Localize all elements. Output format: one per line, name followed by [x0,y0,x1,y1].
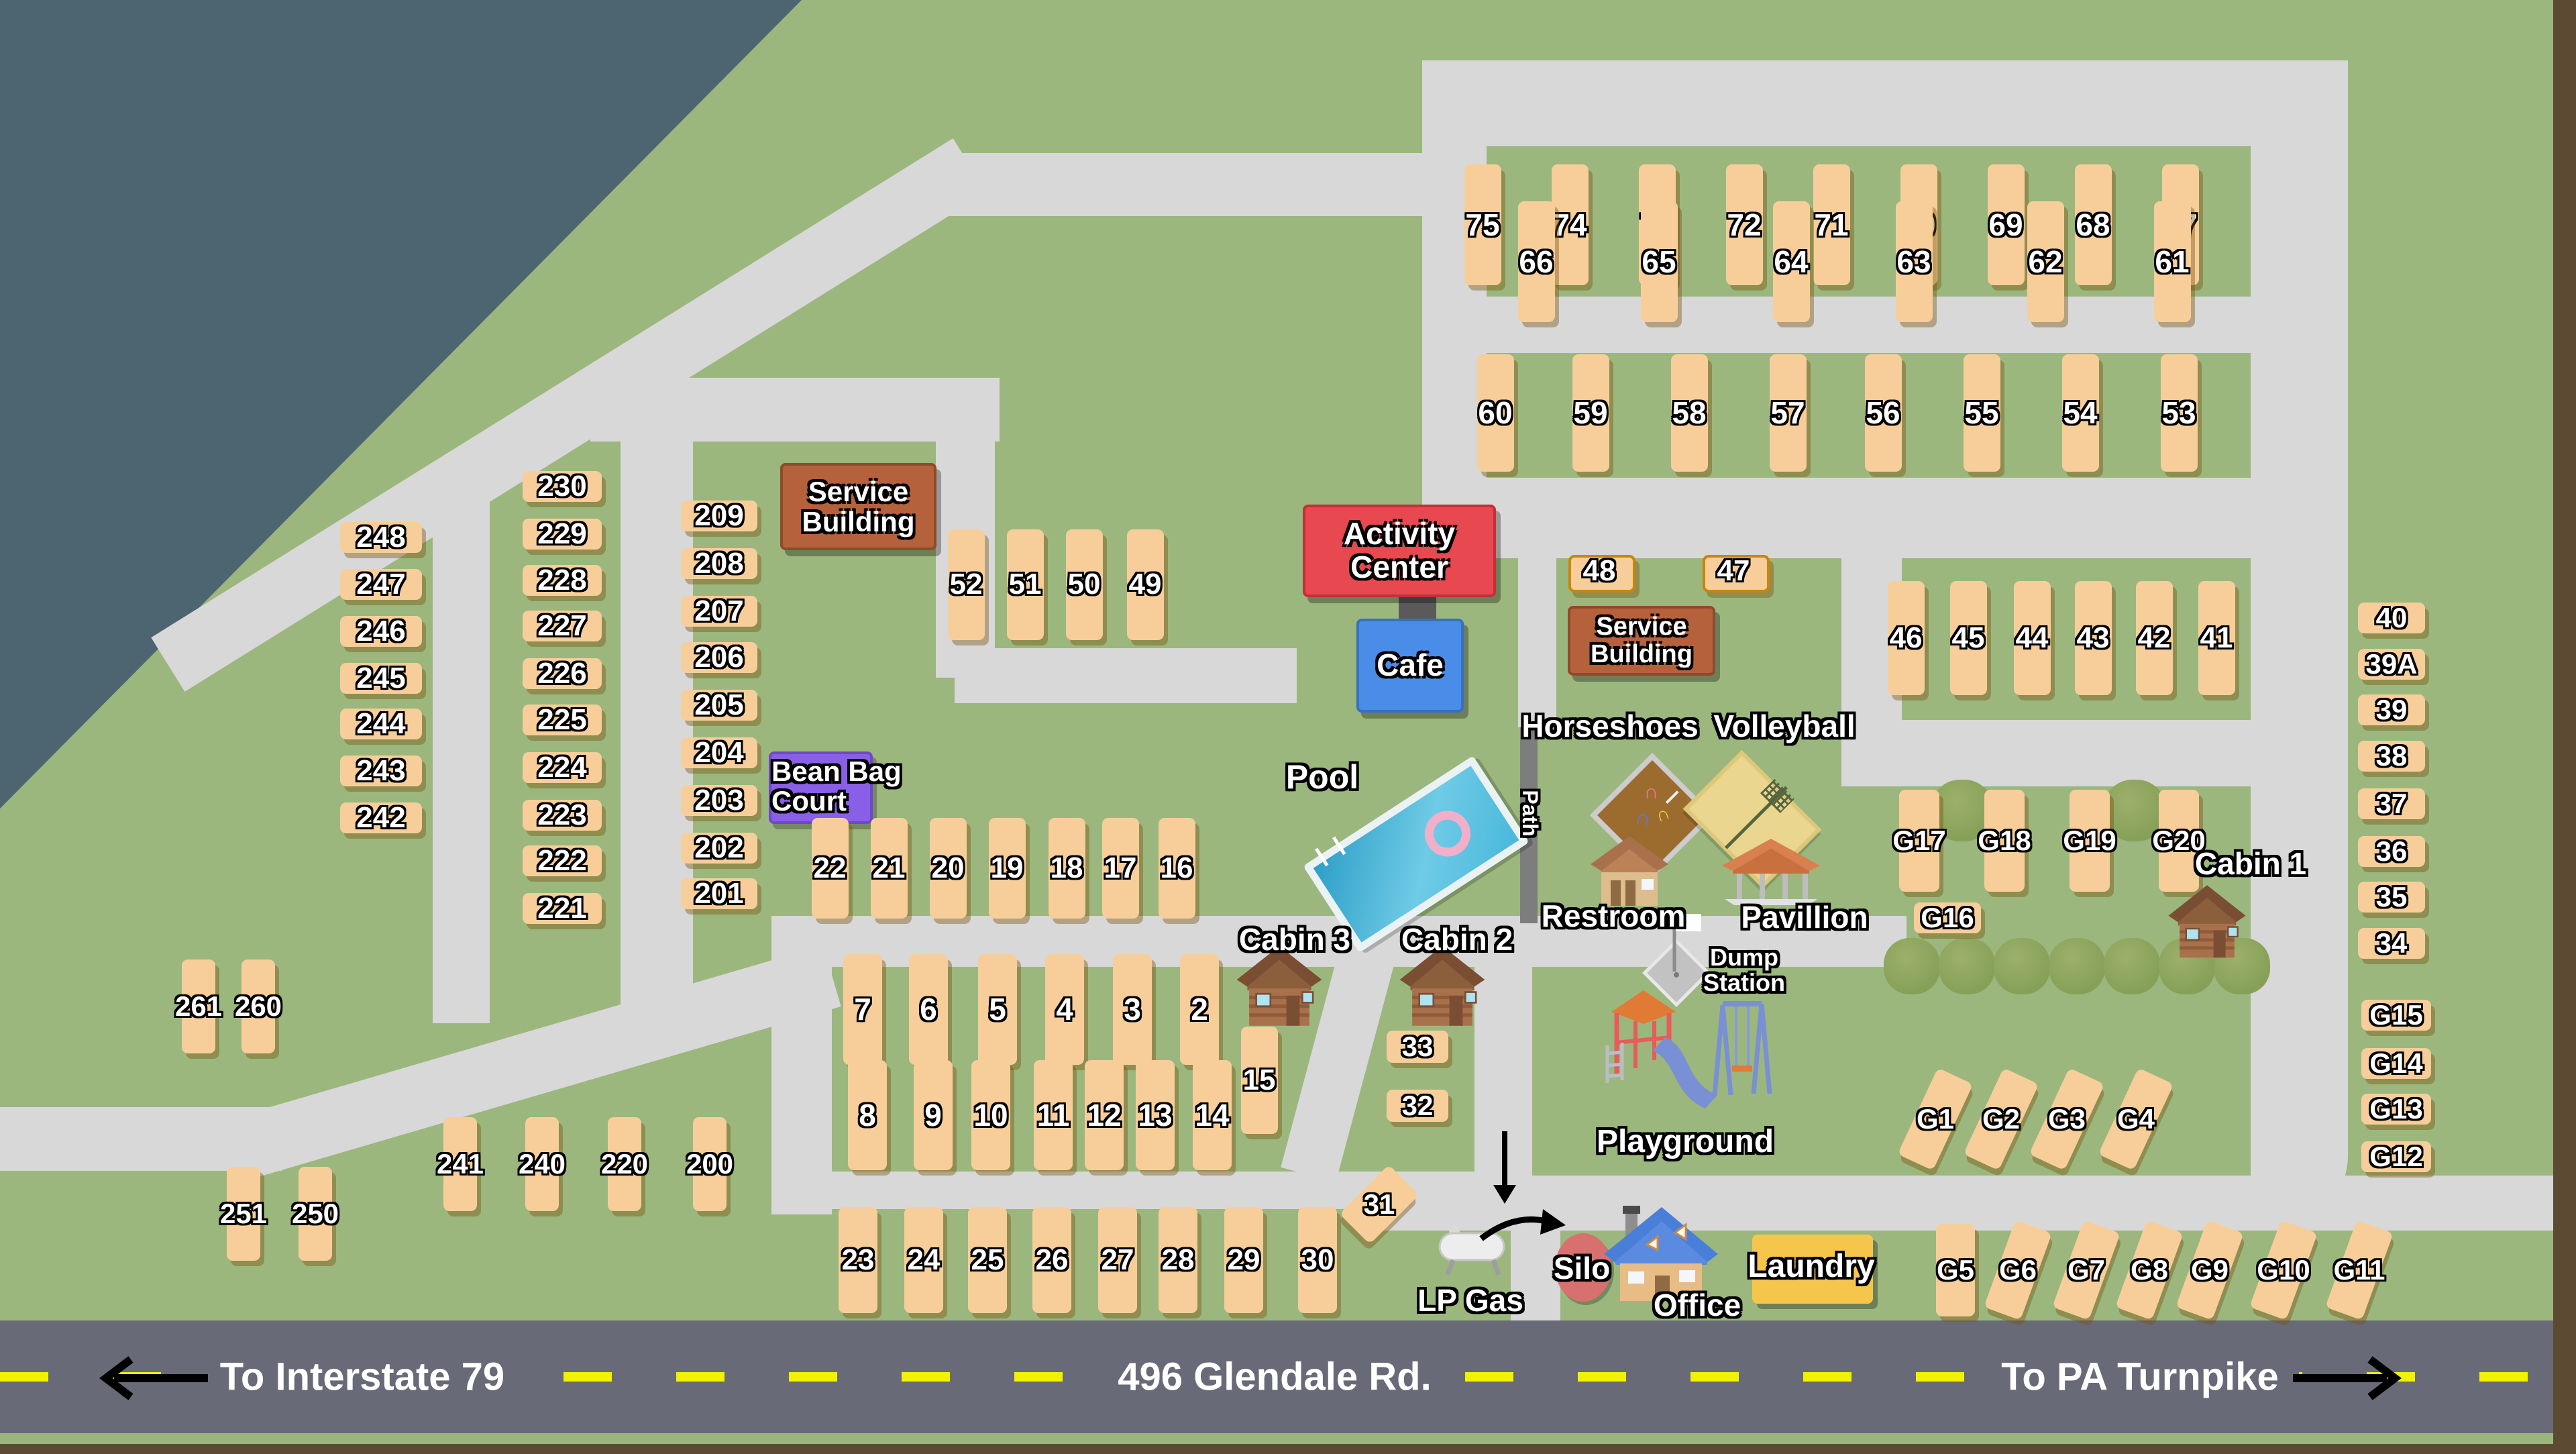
site-number: 38 [2376,740,2408,772]
site-number: 23 [842,1243,875,1277]
site-number: 9 [924,1097,942,1133]
site-number: 4 [1056,991,1073,1027]
site-241: 241 [443,1117,477,1211]
site-260: 260 [241,959,275,1053]
site-number: 207 [694,594,743,628]
site-51: 51 [1007,529,1044,640]
site-number: 243 [356,754,405,788]
silo-label: Silo [1554,1252,1610,1284]
site-206: 206 [681,642,757,673]
site-number: 55 [1964,395,1998,431]
right-arrow-icon [2286,1351,2407,1405]
site-55: 55 [1964,354,2000,472]
site-number: 35 [2376,881,2408,913]
site-number: 39A [2365,648,2417,680]
site-34: 34 [2358,928,2425,959]
bush-icon [1884,938,1940,994]
site-g1: G1 [1916,1072,1955,1167]
site-15: 15 [1241,1027,1278,1134]
map-frame-bottom [0,1444,2576,1454]
site-32: 32 [1387,1090,1448,1122]
site-204: 204 [681,737,757,768]
site-209: 209 [681,501,757,531]
site-202: 202 [681,833,757,864]
site-6: 6 [909,954,948,1065]
site-number: 260 [235,990,282,1023]
site-number: 10 [973,1097,1008,1133]
site-number: 30 [1301,1243,1334,1277]
site-g18: G18 [1984,790,2025,892]
site-number: 37 [2376,788,2408,820]
site-number: 6 [920,991,937,1027]
site-number: 61 [2155,244,2189,280]
cabin-1-label: Cabin 1 [2195,847,2306,880]
site-number: 248 [356,521,405,554]
bean-bag-court-label: Bean Bag Court [771,757,932,816]
site-47: 47 [1703,555,1764,587]
site-number: 69 [1988,207,2023,243]
site-243: 243 [340,756,422,786]
site-number: 27 [1102,1243,1134,1277]
road-below-46 [1841,720,2348,786]
site-27: 27 [1098,1207,1137,1313]
site-17: 17 [1102,818,1139,919]
site-28: 28 [1159,1207,1197,1313]
site-229: 229 [523,519,602,550]
site-68: 68 [2075,164,2112,285]
site-8: 8 [848,1060,887,1170]
site-number: 20 [932,851,965,885]
site-31: 31 [1358,1170,1401,1239]
site-9: 9 [914,1060,953,1170]
site-22: 22 [812,818,849,919]
site-200: 200 [693,1117,727,1211]
site-2: 2 [1180,954,1219,1065]
site-37: 37 [2358,788,2425,819]
site-number: 221 [537,892,586,925]
site-225: 225 [523,705,602,735]
site-20: 20 [930,818,967,919]
site-number: 229 [537,517,586,551]
site-number: 74 [1552,207,1587,243]
site-48: 48 [1568,555,1630,587]
laundry-label: Laundry [1748,1250,1874,1284]
site-number: 40 [2376,602,2408,634]
site-number: 33 [1402,1031,1434,1063]
playground-label: Playground [1597,1125,1774,1159]
site-number: 12 [1087,1097,1121,1133]
site-13: 13 [1136,1060,1175,1170]
site-number: 247 [356,568,405,601]
site-72: 72 [1726,164,1763,285]
site-39: 39 [2358,694,2425,725]
restroom-label: Restroom [1542,900,1686,932]
site-45: 45 [1950,581,1987,695]
site-g10: G10 [2264,1224,2303,1316]
site-number: 71 [1814,207,1848,243]
site-number: 225 [537,703,586,737]
site-g2: G2 [1982,1072,2021,1167]
site-59: 59 [1572,354,1609,472]
site-number: 202 [694,831,743,865]
site-number: 34 [2376,927,2408,959]
site-number: 41 [2200,621,2233,655]
site-number: G7 [2068,1254,2105,1286]
site-74: 74 [1552,164,1589,285]
site-25: 25 [968,1207,1007,1313]
highway-label-street: 496 Glendale Rd. [1097,1355,1451,1400]
site-number: 58 [1672,395,1706,431]
bush-icon [2104,938,2160,994]
site-number: 75 [1465,207,1499,243]
site-50: 50 [1066,529,1103,640]
site-number: 52 [950,568,983,601]
site-207: 207 [681,596,757,627]
site-g14: G14 [2361,1048,2431,1079]
site-number: 31 [1364,1188,1395,1221]
site-number: 62 [2028,244,2062,280]
site-number: 224 [537,751,586,784]
site-number: G6 [1999,1254,2037,1286]
site-226: 226 [523,658,602,689]
one-way-down-arrow-icon [1488,1129,1521,1206]
cafe: Cafe [1356,619,1464,713]
site-g11: G11 [2340,1224,2379,1316]
site-g7: G7 [2067,1224,2106,1316]
site-number: 3 [1124,991,1141,1027]
site-number: 240 [519,1148,566,1180]
site-number: G8 [2131,1254,2168,1286]
horseshoes-label: Horseshoes [1521,710,1698,742]
site-number: G13 [2369,1093,2422,1125]
site-201: 201 [681,878,757,909]
road-h4 [955,648,1297,703]
site-g13: G13 [2361,1094,2431,1125]
site-245: 245 [340,663,422,694]
site-g15: G15 [2361,1000,2431,1031]
cabin-2-label: Cabin 2 [1401,923,1513,955]
road-left-stub [0,1107,282,1171]
site-223: 223 [523,800,602,831]
campground-map: To Interstate 79 496 Glendale Rd. To PA … [0,0,2576,1454]
site-number: 205 [694,688,743,722]
dump-station-label: Dump Station [1687,945,1801,996]
site-33: 33 [1387,1031,1448,1063]
site-38: 38 [2358,741,2425,772]
site-number: G16 [1921,902,1974,934]
site-number: 16 [1161,851,1193,885]
site-g12: G12 [2361,1141,2431,1172]
pool-ladder-icon [1315,837,1346,867]
site-number: 60 [1478,395,1512,431]
cabin-icon [2167,880,2247,961]
site-64: 64 [1773,201,1810,322]
site-g17: G17 [1899,790,1939,892]
site-number: 226 [537,657,586,690]
site-number: 228 [537,564,586,597]
site-number: 32 [1402,1090,1434,1122]
site-number: 44 [2016,621,2049,655]
site-65: 65 [1641,201,1678,322]
site-number: 230 [537,470,586,503]
site-number: 19 [991,851,1024,885]
site-number: G10 [2257,1254,2310,1286]
site-number: 66 [1519,244,1553,280]
site-g6: G6 [1998,1224,2037,1316]
site-61: 61 [2154,201,2191,322]
pool-label: Pool [1286,760,1358,795]
site-g19: G19 [2070,790,2110,892]
site-54: 54 [2062,354,2099,472]
site-36: 36 [2358,836,2425,867]
site-number: 18 [1051,851,1083,885]
site-number: 5 [989,991,1006,1027]
pavillion-label: Pavillion [1741,901,1868,933]
road-top-loop [1422,60,2348,146]
site-number: 227 [537,609,586,643]
restroom-icon [1588,832,1671,908]
site-number: 17 [1104,851,1137,885]
site-number: 206 [694,641,743,674]
site-5: 5 [978,954,1017,1065]
site-52: 52 [948,529,985,640]
road-right-side [2251,60,2348,1229]
site-7: 7 [843,954,882,1065]
site-12: 12 [1085,1060,1124,1170]
site-23: 23 [839,1207,877,1313]
site-number: 64 [1774,244,1808,280]
site-41: 41 [2198,581,2235,695]
site-number: 25 [971,1243,1004,1277]
site-number: 51 [1009,568,1042,601]
site-number: G19 [2063,825,2116,857]
bush-icon [1939,938,1995,994]
highway-label-interstate: To Interstate 79 [200,1355,525,1400]
site-number: G17 [1892,825,1945,857]
site-247: 247 [340,569,422,600]
site-number: 11 [1037,1097,1070,1133]
site-number: 8 [859,1097,876,1133]
site-250: 250 [299,1167,332,1261]
site-56: 56 [1865,354,1902,472]
site-75: 75 [1464,164,1501,285]
site-number: 201 [694,877,743,911]
site-number: 45 [1952,621,1985,655]
site-number: G9 [2191,1254,2229,1286]
site-number: 39 [2376,694,2408,726]
site-62: 62 [2027,201,2064,322]
site-number: G5 [1937,1254,1974,1286]
site-number: 220 [601,1148,648,1180]
site-number: 14 [1195,1097,1229,1133]
site-227: 227 [523,611,602,641]
site-35: 35 [2358,882,2425,913]
site-246: 246 [340,616,422,647]
map-frame-right [2553,0,2576,1454]
site-208: 208 [681,548,757,579]
site-number: 261 [175,990,222,1023]
site-60: 60 [1477,354,1514,472]
site-63: 63 [1896,201,1933,322]
site-40: 40 [2358,603,2425,633]
highway-label-turnpike: To PA Turnpike [1981,1355,2299,1400]
site-205: 205 [681,690,757,721]
site-number: 204 [694,736,743,770]
site-251: 251 [227,1167,260,1261]
service-building-1: Service Building [780,463,936,550]
site-number: 42 [2138,621,2171,655]
office-label: Office [1654,1289,1741,1321]
site-number: 244 [356,707,405,741]
site-number: 208 [694,547,743,580]
site-g16: G16 [1914,902,1981,933]
site-26: 26 [1032,1207,1071,1313]
site-number: G2 [1982,1103,2020,1135]
site-58: 58 [1671,354,1708,472]
site-19: 19 [989,818,1026,919]
site-number: 245 [356,662,405,695]
site-number: 48 [1583,554,1616,588]
site-number: G4 [2117,1103,2155,1135]
site-number: G3 [2048,1103,2086,1135]
site-number: 26 [1036,1243,1069,1277]
site-number: G1 [1917,1103,1954,1135]
site-number: 53 [2161,395,2196,431]
site-number: 36 [2376,835,2408,868]
site-21: 21 [871,818,908,919]
site-16: 16 [1159,818,1195,919]
site-242: 242 [340,802,422,833]
site-4: 4 [1045,954,1084,1065]
road-top-connector [932,153,1469,216]
site-g5: G5 [1936,1224,1975,1316]
site-71: 71 [1813,164,1850,285]
site-230: 230 [523,471,602,502]
site-14: 14 [1193,1060,1232,1170]
site-18: 18 [1049,818,1085,919]
lp-gas-label: LP Gas [1417,1284,1523,1316]
site-number: 21 [873,851,906,885]
site-number: 59 [1573,395,1607,431]
site-number: 68 [2076,207,2110,243]
volleyball-label: Volleyball [1713,710,1855,742]
left-arrow-icon [94,1351,215,1405]
site-number: 65 [1642,244,1676,280]
site-number: 250 [292,1198,339,1230]
site-number: 242 [356,801,405,835]
site-46: 46 [1888,581,1925,695]
road-v1 [433,470,490,1023]
site-224: 224 [523,752,602,783]
site-number: 28 [1162,1243,1195,1277]
site-66: 66 [1518,201,1555,322]
site-number: G18 [1978,825,2031,857]
site-261: 261 [182,959,215,1053]
site-number: 251 [220,1198,267,1230]
site-221: 221 [523,893,602,924]
site-number: 56 [1866,395,1900,431]
site-220: 220 [608,1117,641,1211]
site-number: 24 [908,1243,941,1277]
site-24: 24 [904,1207,943,1313]
path-label: Path [1518,790,1541,836]
site-number: 209 [694,499,743,533]
site-3: 3 [1113,954,1152,1065]
site-number: 2 [1191,991,1208,1027]
road-activity-left [1518,478,1556,727]
site-number: G11 [2333,1254,2385,1286]
site-248: 248 [340,522,422,553]
site-g20: G20 [2159,790,2199,892]
site-39a: 39A [2358,649,2425,680]
site-44: 44 [2014,581,2051,695]
bush-icon [2049,938,2105,994]
site-11: 11 [1034,1060,1073,1170]
site-number: 241 [437,1148,484,1180]
pool-ring-icon [1416,802,1479,865]
site-10: 10 [971,1060,1010,1170]
site-number: 57 [1770,395,1805,431]
site-number: 54 [2063,395,2097,431]
site-g3: G3 [2047,1072,2086,1167]
site-number: 50 [1068,568,1101,601]
site-240: 240 [525,1117,559,1211]
site-53: 53 [2161,354,2198,472]
activity-center: Activity Center [1303,505,1496,597]
site-30: 30 [1298,1207,1337,1313]
cabin-3-label: Cabin 3 [1239,923,1350,955]
bush-icon [1994,938,2050,994]
site-number: 246 [356,615,405,648]
site-222: 222 [523,845,602,876]
site-number: 63 [1896,244,1931,280]
site-number: 22 [814,851,847,885]
site-228: 228 [523,565,602,596]
site-number: 203 [694,784,743,817]
playground-icon [1583,981,1778,1129]
pavillion-icon [1721,835,1821,906]
site-number: G12 [2369,1141,2422,1173]
entrance-curve-arrow-icon [1476,1200,1570,1247]
site-number: 7 [854,991,871,1027]
site-g9: G9 [2190,1224,2229,1316]
site-g8: G8 [2130,1224,2169,1316]
site-number: 200 [686,1148,733,1180]
site-43: 43 [2075,581,2112,695]
service-building-2: Service Building [1568,606,1715,676]
site-number: 43 [2077,621,2110,655]
site-number: 13 [1138,1097,1172,1133]
site-number: 223 [537,798,586,832]
site-42: 42 [2136,581,2173,695]
site-g4: G4 [2116,1072,2155,1167]
site-number: 49 [1129,568,1162,601]
site-number: 72 [1727,207,1761,243]
site-57: 57 [1770,354,1807,472]
site-number: 47 [1717,554,1750,588]
site-203: 203 [681,785,757,816]
site-number: G15 [2369,999,2422,1031]
site-number: 46 [1890,621,1923,655]
site-244: 244 [340,709,422,739]
site-number: 15 [1243,1063,1276,1097]
site-69: 69 [1988,164,2025,285]
site-number: 222 [537,844,586,878]
site-29: 29 [1224,1207,1263,1313]
site-49: 49 [1127,529,1164,640]
site-number: 29 [1228,1243,1260,1277]
site-number: G14 [2369,1047,2422,1080]
